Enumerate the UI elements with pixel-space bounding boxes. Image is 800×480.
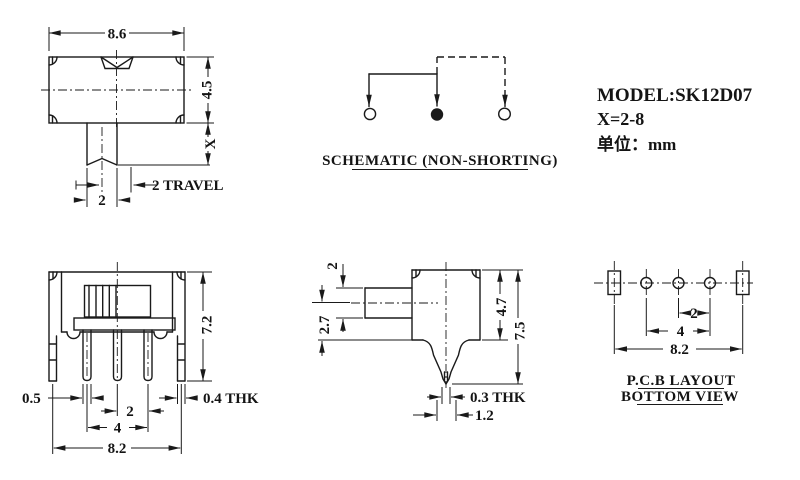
schematic-dashed-path — [437, 57, 505, 107]
pcb-dim-span-label: 4 — [677, 324, 685, 340]
pin-view-dim-height: 7.2 — [187, 272, 216, 381]
side-view-centerlines — [351, 262, 446, 388]
pin-view-centerlines — [87, 262, 148, 379]
front-dim-stem-width-label: 2 — [98, 193, 106, 209]
pin-view-dim-pin-width: 0.5 — [22, 384, 102, 407]
terminal-common-contact — [431, 108, 443, 120]
side-view: 2 2.7 4.7 7.5 0.3 — [312, 262, 529, 424]
front-dim-height-label: 4.5 — [200, 81, 216, 100]
side-view-dim-total-height-label: 7.5 — [513, 322, 529, 341]
side-view-dim-body-height-label: 4.7 — [494, 297, 510, 316]
front-dim-stem-length-label: X — [203, 138, 219, 149]
pcb-dim-pitch-label: 2 — [690, 306, 698, 322]
pin-view-dim-bracket-span-label: 8.2 — [108, 441, 127, 457]
drawing-sheet: 8.6 4.5 X 2 TRAVEL — [0, 0, 800, 480]
schematic-view: SCHEMATIC (NON-SHORTING) — [322, 57, 558, 170]
schematic-solid-path — [369, 74, 437, 107]
pcb-title-line1: P.C.B LAYOUT — [627, 373, 736, 389]
pin-view-dim-bracket-thk: 0.4 THK — [159, 384, 259, 407]
pcb-pin-holes — [641, 269, 716, 298]
front-dim-width-label: 8.6 — [108, 27, 127, 43]
unit-note: 单位：mm — [597, 134, 676, 154]
side-view-dim-pin-thk: 0.3 THK — [427, 387, 526, 406]
front-dim-travel-label: 2 TRAVEL — [152, 178, 224, 194]
side-view-dim-total-height: 7.5 — [452, 270, 529, 384]
switch-technical-drawing: 8.6 4.5 X 2 TRAVEL — [0, 0, 800, 480]
x-range: X=2-8 — [597, 109, 644, 129]
side-view-dim-center: 2.7 — [312, 285, 350, 356]
front-view: 8.6 4.5 X 2 TRAVEL — [41, 27, 224, 210]
terminal-1-contact — [364, 108, 375, 119]
pin-view-dim-pin-width-label: 0.5 — [22, 391, 41, 407]
pcb-title-line2: BOTTOM VIEW — [621, 389, 739, 405]
pin-view-dim-pin-pitch-label: 2 — [126, 404, 134, 420]
front-dim-width: 8.6 — [49, 27, 184, 52]
front-dim-stem-length: X — [118, 123, 219, 165]
pin-view-dim-pin-pitch: 2 — [101, 384, 164, 432]
pin-view-dim-height-label: 7.2 — [200, 316, 216, 335]
side-view-dim-pin-base-label: 1.2 — [475, 408, 494, 424]
info-block: MODEL:SK12D07 X=2-8 单位：mm — [597, 85, 753, 154]
pin-view-dim-bracket-thk-label: 0.4 THK — [203, 391, 259, 407]
side-view-dim-knob-label: 2 — [325, 262, 341, 270]
model-number: MODEL:SK12D07 — [597, 85, 753, 106]
pcb-dim-bracket-span-label: 8.2 — [670, 342, 689, 358]
terminal-3-contact — [499, 108, 511, 120]
pin-view-dim-pin-span-label: 4 — [114, 421, 122, 437]
front-dim-travel: 2 TRAVEL — [76, 167, 224, 194]
schematic-title: SCHEMATIC (NON-SHORTING) — [322, 153, 558, 169]
pcb-title: P.C.B LAYOUT BOTTOM VIEW — [621, 373, 739, 405]
pin-view: 7.2 0.5 0.4 THK 2 — [22, 262, 259, 457]
pcb-dim-span: 4 — [646, 298, 709, 340]
side-view-dim-pin-thk-label: 0.3 THK — [470, 390, 526, 406]
pcb-layout-view: 2 4 8.2 P.C.B LAYOUT BOTTOM VIEW — [594, 261, 753, 405]
pin-view-base-plate — [74, 318, 175, 330]
side-view-dim-center-label: 2.7 — [317, 315, 333, 334]
front-top-notch — [101, 57, 133, 69]
